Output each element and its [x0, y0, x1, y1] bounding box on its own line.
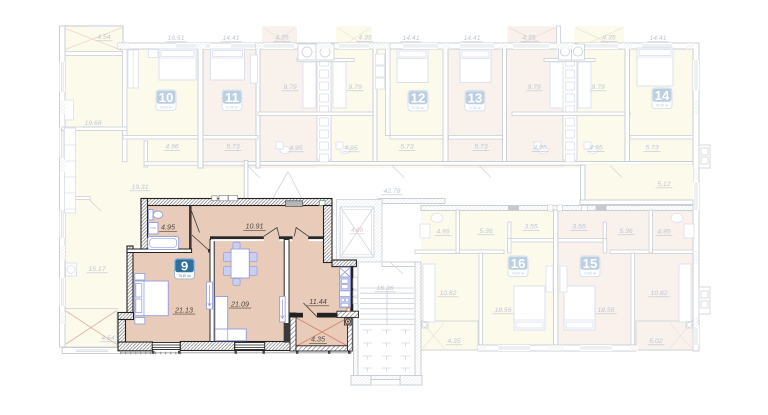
svg-text:5.36: 5.36	[479, 228, 492, 235]
svg-text:42.78: 42.78	[383, 188, 400, 195]
svg-text:11.44: 11.44	[309, 297, 326, 306]
svg-text:4.35: 4.35	[275, 35, 288, 42]
svg-text:4.95: 4.95	[657, 229, 670, 236]
svg-text:5.36: 5.36	[619, 228, 632, 235]
svg-text:4.95: 4.95	[589, 145, 602, 152]
svg-text:16: 16	[511, 256, 526, 271]
svg-text:43.89 м²: 43.89 м²	[512, 271, 525, 275]
svg-text:10: 10	[159, 90, 174, 105]
svg-text:4.35: 4.35	[311, 335, 326, 344]
svg-text:70.87 м²: 70.87 м²	[178, 274, 191, 278]
svg-text:4.68: 4.68	[351, 227, 364, 234]
svg-text:13: 13	[468, 91, 483, 106]
svg-text:5.12: 5.12	[657, 181, 670, 188]
svg-text:10.91: 10.91	[246, 222, 264, 231]
svg-text:21.13: 21.13	[174, 305, 193, 314]
svg-text:4.35: 4.35	[522, 35, 535, 42]
svg-text:16.36: 16.36	[376, 285, 393, 292]
svg-text:9: 9	[181, 259, 188, 274]
svg-text:4.95: 4.95	[344, 145, 357, 152]
svg-text:5.73: 5.73	[645, 145, 658, 152]
svg-text:18.56: 18.56	[494, 307, 511, 314]
svg-text:9.79: 9.79	[283, 84, 296, 91]
svg-text:3.55: 3.55	[524, 224, 537, 231]
svg-text:37.85 м²: 37.85 м²	[469, 106, 482, 110]
svg-text:3.55: 3.55	[572, 224, 585, 231]
svg-text:18.56: 18.56	[597, 307, 614, 314]
svg-text:11: 11	[225, 90, 239, 105]
svg-text:4.54: 4.54	[101, 335, 114, 342]
svg-text:9.79: 9.79	[591, 84, 604, 91]
svg-text:4.35: 4.35	[358, 35, 371, 42]
svg-text:9.79: 9.79	[348, 84, 361, 91]
svg-text:43.86 м²: 43.86 м²	[584, 271, 597, 275]
svg-text:5.73: 5.73	[474, 144, 487, 151]
svg-text:9.79: 9.79	[527, 84, 540, 91]
svg-text:14.41: 14.41	[402, 35, 419, 42]
svg-text:5.73: 5.73	[226, 144, 239, 151]
svg-text:19.31: 19.31	[131, 184, 148, 191]
svg-text:4.35: 4.35	[602, 35, 615, 42]
svg-text:4.95: 4.95	[161, 223, 176, 232]
svg-text:5.73: 5.73	[400, 144, 413, 151]
svg-text:14: 14	[655, 88, 670, 103]
svg-text:4.35: 4.35	[447, 338, 460, 345]
svg-text:48.63 м²: 48.63 м²	[160, 105, 173, 109]
svg-text:48.55 м²: 48.55 м²	[656, 103, 669, 107]
svg-text:37.59 м²: 37.59 м²	[226, 105, 239, 109]
svg-text:16.51: 16.51	[167, 35, 184, 42]
svg-text:14.41: 14.41	[649, 35, 666, 42]
svg-text:4.95: 4.95	[289, 145, 302, 152]
svg-text:4.95: 4.95	[533, 145, 546, 152]
svg-text:10.82: 10.82	[439, 290, 456, 297]
svg-text:10.82: 10.82	[650, 290, 667, 297]
svg-text:37.85 м²: 37.85 м²	[412, 106, 425, 110]
svg-text:14.41: 14.41	[222, 35, 239, 42]
svg-text:5.02: 5.02	[649, 338, 662, 345]
svg-text:15.17: 15.17	[88, 266, 105, 273]
svg-text:21.09: 21.09	[230, 299, 249, 308]
svg-text:4.95: 4.95	[436, 229, 449, 236]
svg-text:14.41: 14.41	[463, 35, 480, 42]
svg-text:12: 12	[411, 91, 426, 106]
svg-text:4.96: 4.96	[165, 144, 178, 151]
svg-text:4.54: 4.54	[97, 34, 110, 41]
svg-text:19.68: 19.68	[84, 120, 101, 127]
svg-text:15: 15	[583, 256, 598, 271]
